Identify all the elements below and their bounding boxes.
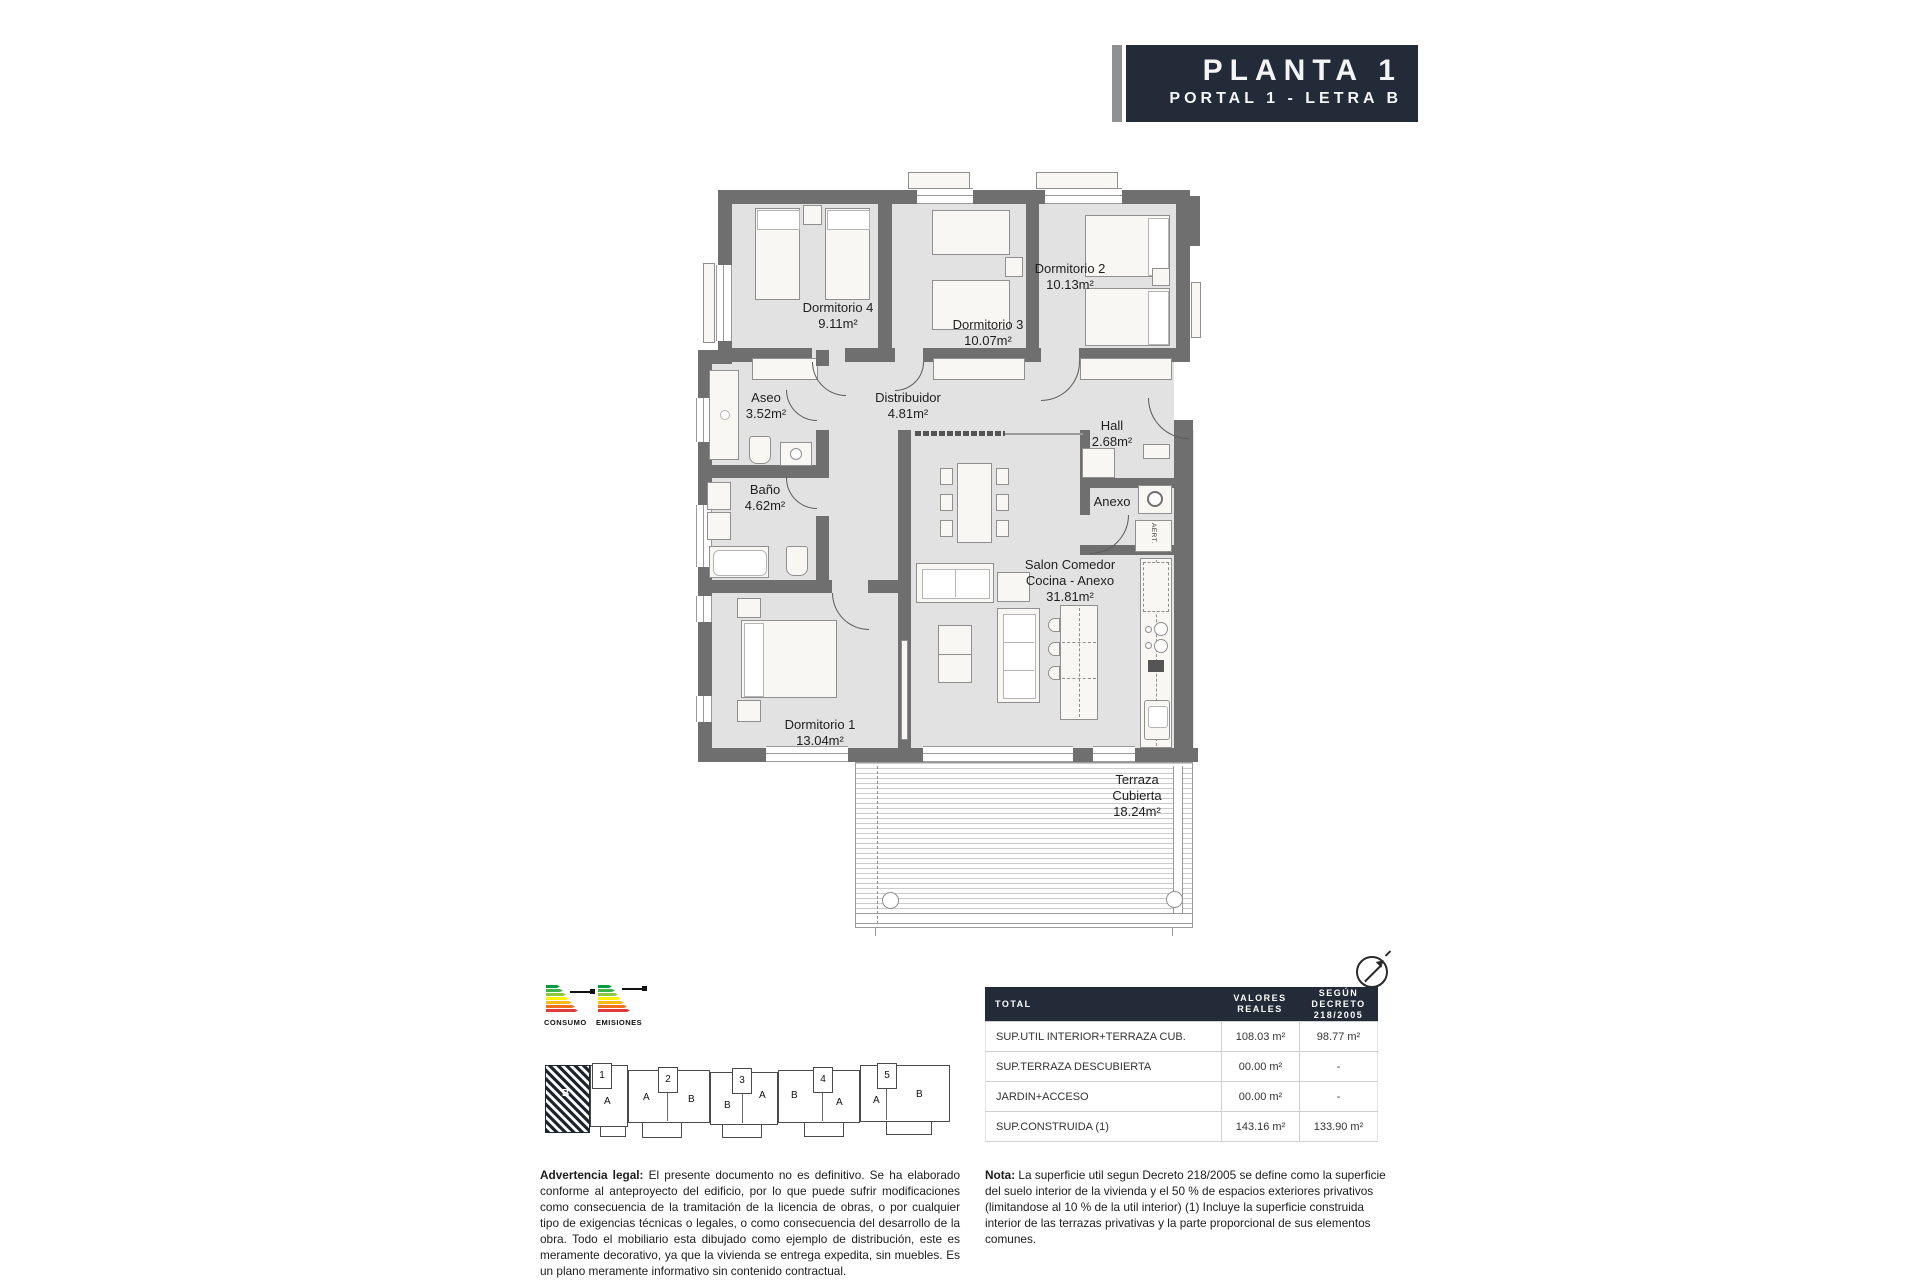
surface-table-cell-label: SUP.TERRAZA DESCUBIERTA xyxy=(985,1052,1221,1081)
surface-table-row: JARDIN+ACCESO00.00 m²- xyxy=(985,1081,1378,1111)
island-line-2 xyxy=(1062,678,1096,680)
consumo-scale-bar xyxy=(546,985,560,988)
coffee-table-split xyxy=(938,654,972,655)
room-label-anexo: Anexo xyxy=(1094,494,1131,510)
site-block-number: 1 xyxy=(592,1063,612,1089)
emisiones-scale-bar xyxy=(598,1001,624,1004)
sofa-1-cushion-split xyxy=(955,569,956,597)
consumo-scale-bar xyxy=(546,1005,575,1008)
site-unit-letter: B xyxy=(688,1094,695,1105)
island-line-1 xyxy=(1062,642,1096,644)
shutter-box-d2 xyxy=(1036,172,1118,189)
site-building-block xyxy=(860,1065,950,1122)
pocket-door-panel xyxy=(901,640,908,740)
surface-table-cell-label: JARDIN+ACCESO xyxy=(985,1082,1221,1111)
surface-table-cell-value: 00.00 m² xyxy=(1221,1052,1299,1081)
hob-burner-4 xyxy=(1145,642,1152,649)
wardrobe-d2 xyxy=(1080,358,1172,380)
surface-table-cell-label: SUP.CONSTRUIDA (1) xyxy=(985,1112,1221,1141)
hob-burner-3 xyxy=(1145,626,1152,633)
emisiones-rating-indicator xyxy=(622,988,642,990)
consumo-label: CONSUMO xyxy=(544,1018,587,1027)
surface-table-row: SUP.UTIL INTERIOR+TERRAZA CUB.108.03 m²9… xyxy=(985,1021,1378,1051)
wall-d4-d3 xyxy=(878,204,892,350)
site-block-number: 4 xyxy=(813,1067,833,1093)
hob-burner-1 xyxy=(1154,622,1168,636)
terrace-divider-line xyxy=(877,766,879,924)
nightstand-d4 xyxy=(803,205,822,225)
surface-table-cell-value: 98.77 m² xyxy=(1299,1022,1378,1051)
dining-chair xyxy=(940,494,953,511)
window-terrace-slider xyxy=(923,746,1073,762)
dining-table xyxy=(957,463,992,543)
nightstand-d2 xyxy=(1152,268,1170,286)
wardrobe-d4 xyxy=(752,358,818,380)
room-label-banio: Baño4.62m² xyxy=(745,482,785,514)
site-building-stub xyxy=(722,1125,762,1138)
dining-chair xyxy=(940,468,953,485)
nightstand-d3 xyxy=(1005,257,1023,277)
hall-closet xyxy=(1082,448,1115,478)
wall-right-upper xyxy=(1176,190,1190,356)
consumo-scale-bar xyxy=(546,989,563,992)
site-block-number: 3 xyxy=(732,1068,752,1094)
emisiones-scale-bar xyxy=(598,989,615,992)
consumo-rating-indicator xyxy=(570,991,590,993)
toilet-banio xyxy=(786,546,808,576)
surface-note-lead: Nota: xyxy=(985,1168,1015,1182)
room-label-aseo: Aseo3.52m² xyxy=(746,390,786,422)
sofa-2-split-2 xyxy=(1003,670,1034,671)
compass-icon xyxy=(1356,956,1388,988)
surface-table-cell-value: - xyxy=(1299,1082,1378,1111)
surface-table-row: SUP.TERRAZA DESCUBIERTA00.00 m²- xyxy=(985,1051,1378,1081)
bed-d1-pillow xyxy=(744,623,764,697)
site-unit-letter: A xyxy=(873,1095,880,1106)
aert-closet-label: AERT. xyxy=(1150,523,1157,544)
surface-note-body: La superficie util segun Decreto 218/200… xyxy=(985,1168,1386,1246)
surface-table-header-valores: VALORES REALES xyxy=(1221,987,1299,1021)
legal-disclaimer-lead: Advertencia legal: xyxy=(540,1168,644,1182)
dining-chair xyxy=(996,468,1009,485)
consumo-scale-bar xyxy=(546,1009,578,1012)
bed-d3-1 xyxy=(932,210,1010,255)
emisiones-scale-bar xyxy=(598,997,621,1000)
island-stool xyxy=(1048,618,1060,632)
surface-table-cell-value: 143.16 m² xyxy=(1221,1112,1299,1141)
dining-chair xyxy=(940,520,953,537)
window-kitchen-bottom xyxy=(1093,746,1135,762)
window-d2-top xyxy=(1045,188,1122,204)
dining-chair xyxy=(996,494,1009,511)
surface-table-cell-value: - xyxy=(1299,1052,1378,1081)
wall-d1-top-a xyxy=(705,580,832,593)
surface-table-header-decreto: SEGÚN DECRETO 218/2005 xyxy=(1299,987,1378,1021)
terrace-tick-right xyxy=(1172,928,1173,936)
emisiones-scale-bar xyxy=(598,993,618,996)
kitchen-sink-bowl xyxy=(1148,706,1168,728)
site-unit-letter: A xyxy=(643,1092,650,1103)
nightstand-d1-bottom xyxy=(737,700,761,722)
room-label-salon: Salon ComedorCocina - Anexo31.81m² xyxy=(1025,557,1115,605)
surface-table-cell-value: 133.90 m² xyxy=(1299,1112,1378,1141)
room-label-dormitorio3: Dormitorio 310.07m² xyxy=(953,317,1024,349)
beam-line xyxy=(915,431,1005,436)
kitchen-fridge xyxy=(1143,562,1169,612)
wall-d1-top-b xyxy=(868,580,898,593)
room-label-hall: Hall2.68m² xyxy=(1092,418,1132,450)
room-label-distribuidor: Distribuidor4.81m² xyxy=(875,390,941,422)
dining-chair xyxy=(996,520,1009,537)
wall-aseo-right-mid xyxy=(816,430,829,478)
window-d1-left-a xyxy=(696,596,712,622)
washbasin-aseo-bowl xyxy=(790,448,802,460)
site-unit-letter: B xyxy=(724,1100,731,1111)
wall-bottom-3 xyxy=(1073,748,1093,762)
room-label-terraza: TerrazaCubierta18.24m² xyxy=(1112,772,1161,820)
ledge-d2-right xyxy=(1191,282,1201,338)
wall-right-lower xyxy=(1174,420,1193,762)
terrace-column-left xyxy=(882,892,899,909)
window-d1-left-b xyxy=(696,696,712,722)
surface-table-cell-value: 108.03 m² xyxy=(1221,1022,1299,1051)
surface-table: TOTAL VALORES REALES SEGÚN DECRETO 218/2… xyxy=(985,987,1378,1142)
consumo-scale-bar xyxy=(546,1001,572,1004)
sink-banio-1 xyxy=(707,482,731,510)
room-label-dormitorio4: Dormitorio 49.11m² xyxy=(803,300,874,332)
pillar-d2-right xyxy=(1190,196,1200,246)
window-d3-top xyxy=(917,188,973,204)
island-stool xyxy=(1048,642,1060,656)
island-centerline xyxy=(1079,608,1081,717)
consumo-scale-bar xyxy=(546,993,566,996)
room-label-dormitorio2: Dormitorio 210.13m² xyxy=(1035,261,1106,293)
site-block-number: 2 xyxy=(658,1067,678,1093)
floor-plan-sheet: PLANTA 1 PORTAL 1 - LETRA B xyxy=(0,0,1920,1280)
wall-bottom-1 xyxy=(698,748,766,762)
wall-aseo-banio xyxy=(705,465,816,478)
wall-bottom-2 xyxy=(848,748,923,762)
site-unit-letter: A xyxy=(836,1097,843,1108)
compass-needle xyxy=(1364,965,1382,983)
legal-disclaimer: Advertencia legal: El presente documento… xyxy=(540,1167,960,1279)
site-building-stub xyxy=(642,1123,682,1138)
nightstand-d1-top xyxy=(737,598,761,618)
surface-table-body: SUP.UTIL INTERIOR+TERRAZA CUB.108.03 m²9… xyxy=(985,1021,1378,1141)
bed-d4-2-pillow xyxy=(827,210,870,230)
site-building-stub xyxy=(804,1123,844,1137)
surface-table-cell-value: 00.00 m² xyxy=(1221,1082,1299,1111)
wardrobe-d3 xyxy=(933,358,1025,380)
island-stool xyxy=(1048,666,1060,680)
sofa-2-cushions xyxy=(1003,614,1036,699)
site-unit-letter: B xyxy=(916,1089,923,1100)
emisiones-scale-bar xyxy=(598,1009,630,1012)
kitchen-utensil-icon xyxy=(1148,660,1164,672)
site-highlighted-unit-letter: B xyxy=(562,1088,569,1099)
sink-banio-2 xyxy=(707,512,731,540)
site-unit-letter: A xyxy=(604,1096,611,1107)
terrace-column-right xyxy=(1166,891,1183,908)
legal-disclaimer-body: El presente documento no es definitivo. … xyxy=(540,1168,960,1278)
site-unit-letter: B xyxy=(791,1090,798,1101)
bed-d2-2-pillow xyxy=(1148,291,1169,345)
wall-bedrooms-b xyxy=(845,348,895,362)
wall-banio-right xyxy=(816,516,829,580)
shower-aseo-drain xyxy=(720,410,730,420)
sofa-1-cushions xyxy=(922,569,990,599)
surface-table-row: SUP.CONSTRUIDA (1)143.16 m²133.90 m² xyxy=(985,1111,1378,1141)
site-block-number: 5 xyxy=(877,1063,897,1089)
washing-machine-door xyxy=(1147,491,1163,507)
surface-table-header: TOTAL VALORES REALES SEGÚN DECRETO 218/2… xyxy=(985,987,1378,1021)
site-unit-letter: A xyxy=(759,1090,766,1101)
surface-note: Nota: La superficie util segun Decreto 2… xyxy=(985,1167,1387,1247)
terrace-railing-bottom xyxy=(856,913,1192,924)
surface-table-header-total: TOTAL xyxy=(985,987,1221,1021)
room-label-dormitorio1: Dormitorio 113.04m² xyxy=(785,717,856,749)
site-highlighted-unit xyxy=(545,1065,590,1133)
sofa-2-split-1 xyxy=(1003,642,1034,643)
window-d4-left xyxy=(716,265,732,341)
consumo-scale-bar xyxy=(546,997,569,1000)
site-building-stub xyxy=(886,1122,932,1135)
emisiones-scale-bar xyxy=(598,985,612,988)
shutter-box-d3 xyxy=(908,172,970,189)
entry-cabinet xyxy=(1143,444,1170,459)
bathtub-banio-inner xyxy=(713,550,767,576)
hob-burner-2 xyxy=(1154,639,1168,653)
bed-d4-1-pillow xyxy=(757,210,800,230)
emisiones-scale-bar xyxy=(598,1005,627,1008)
emisiones-label: EMISIONES xyxy=(596,1018,642,1027)
beam-line-thin xyxy=(1005,433,1083,435)
toilet-aseo xyxy=(749,436,771,464)
floor-plan: AERT. Dormitori xyxy=(0,0,1920,1280)
surface-table-cell-label: SUP.UTIL INTERIOR+TERRAZA CUB. xyxy=(985,1022,1221,1051)
terrace-tick-left xyxy=(875,928,876,936)
sill-d4-left xyxy=(703,263,715,343)
